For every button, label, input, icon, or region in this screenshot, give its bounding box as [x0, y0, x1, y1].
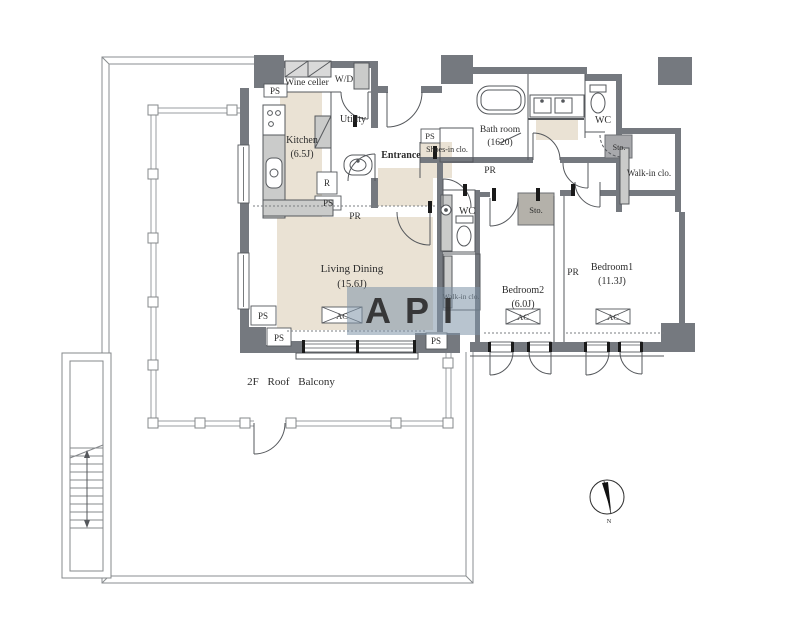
- bedroom2-label: Bedroom2: [502, 285, 544, 296]
- utility-basin: [344, 155, 372, 175]
- ps-label: PS: [274, 333, 284, 343]
- ps-label: PS: [431, 336, 441, 346]
- nw-column: [254, 55, 284, 88]
- refrigerator-label: R: [324, 178, 330, 188]
- staircase: [62, 353, 111, 578]
- toilet-lower: [441, 195, 473, 251]
- vanity-double-sink: [528, 95, 584, 119]
- ac-label: AC: [517, 312, 529, 322]
- balcony-gate-door: [254, 423, 285, 454]
- bedroom-terrace-doors: [490, 352, 642, 375]
- pr-kitchen-label: PR: [349, 212, 361, 222]
- watermark-text: API: [365, 290, 467, 331]
- ps-label: PS: [425, 131, 435, 141]
- compass-north-label: N: [607, 518, 612, 525]
- entrance-door: [387, 92, 422, 127]
- bedroom2-size-label: (6.0J): [511, 299, 534, 310]
- balcony-label: 2F Roof Balcony: [247, 376, 335, 388]
- compass: N: [590, 480, 624, 525]
- wc-upper-label: WC: [595, 115, 611, 126]
- ac-label: AC: [607, 312, 619, 322]
- wd-label: W/D: [335, 75, 354, 85]
- se-corner-block: [661, 323, 695, 352]
- toilet-upper: [590, 85, 606, 113]
- wine-cellar-label: Wine celler: [285, 78, 329, 88]
- ac-label: AC: [336, 311, 348, 321]
- pr-bedrooms-label: PR: [567, 268, 579, 278]
- bathroom-size-label: (1620): [487, 137, 512, 148]
- living-dining-label: Living Dining: [321, 263, 384, 275]
- bath-mat: [536, 120, 578, 140]
- sto-lower-label: Sto.: [529, 205, 542, 215]
- kitchen-label: Kitchen: [286, 135, 318, 146]
- ps-label: PS: [270, 86, 280, 96]
- bedroom1-label: Bedroom1: [591, 262, 633, 273]
- wc-lower-label: WC: [459, 206, 475, 217]
- pr-corridor-label: PR: [484, 166, 496, 176]
- washer-dryer-unit: [354, 63, 369, 89]
- bathroom-label: Bath room: [480, 125, 521, 135]
- shoes-closet-label: Shoes-in clo.: [426, 145, 468, 154]
- terrace-sill: [296, 353, 418, 359]
- bedroom1-size-label: (11.3J): [598, 276, 626, 287]
- entrance-column: [441, 55, 473, 84]
- wine-cellar-shelf: [285, 61, 331, 77]
- watermark: API: [347, 287, 480, 335]
- living-south-window: [304, 341, 415, 352]
- sto-upper-label: Sto.: [613, 143, 626, 152]
- utility-label: Utility: [340, 114, 366, 125]
- stove: [263, 105, 285, 135]
- kitchen-size-label: (6.5J): [290, 149, 313, 160]
- hall-floor: [378, 168, 433, 206]
- floor-plan: Wine celler W/D PS Kitchen (6.5J) Utilit…: [0, 0, 799, 624]
- compass-needle: [602, 482, 611, 511]
- ps-label: PS: [323, 198, 333, 208]
- detached-column: [658, 57, 692, 85]
- bedroom2-door: [490, 198, 518, 226]
- entrance-label: Entrance: [381, 150, 421, 161]
- walk-in-closet-label: Walk-in clo.: [627, 168, 671, 178]
- floor-plan-drawing: Wine celler W/D PS Kitchen (6.5J) Utilit…: [0, 0, 799, 624]
- ps-label: PS: [258, 311, 268, 321]
